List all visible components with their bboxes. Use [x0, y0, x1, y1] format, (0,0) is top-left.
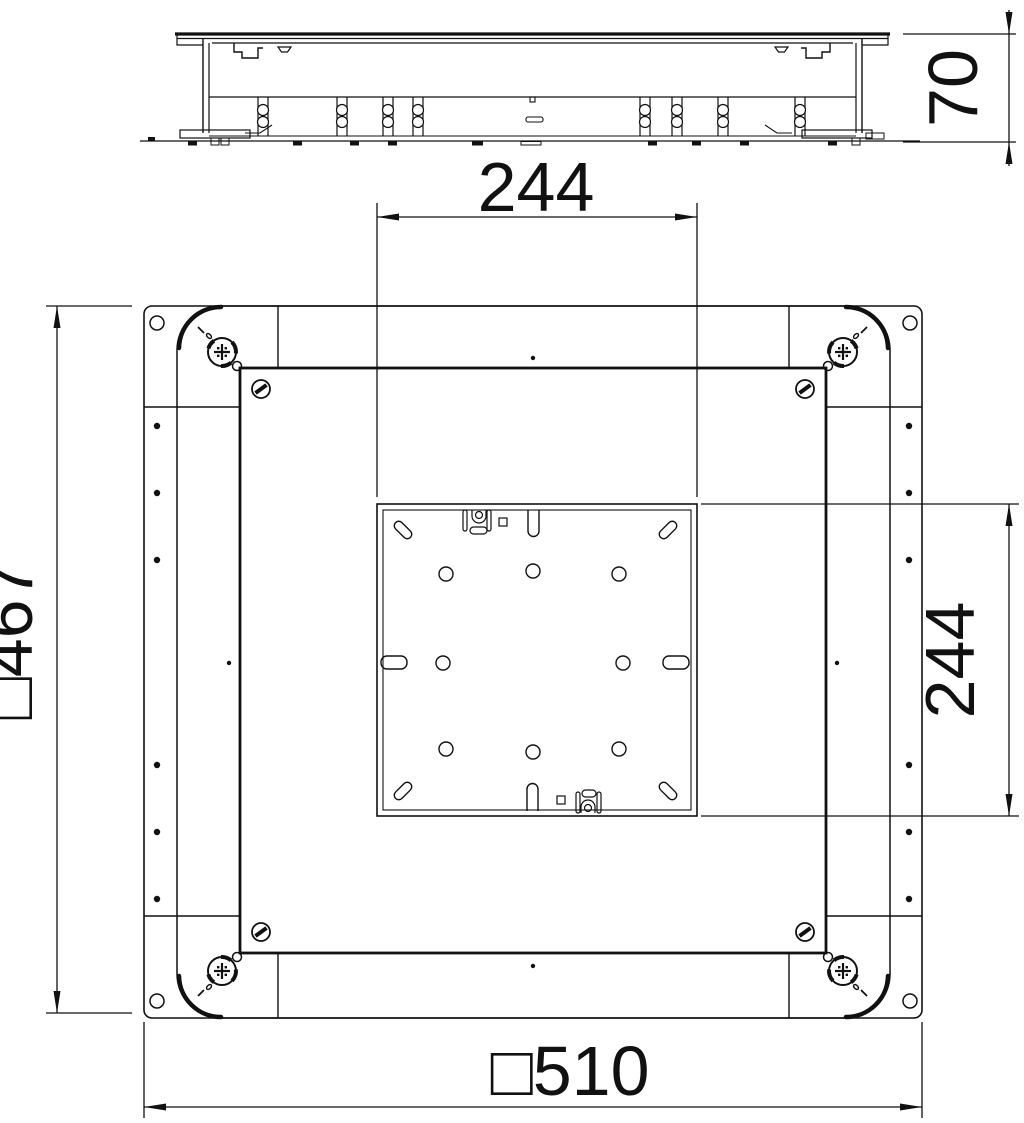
marker-right	[775, 47, 788, 52]
plan-view	[144, 306, 922, 1018]
side-view-body	[203, 39, 862, 136]
plate-top-details	[463, 510, 507, 534]
foot	[672, 97, 683, 136]
frame-corner-holes	[150, 316, 917, 1008]
dim-label-inner-height: 244	[911, 602, 989, 719]
plate-slot-top	[528, 510, 539, 537]
side-view	[140, 34, 920, 146]
slotted-screw	[252, 923, 270, 941]
lid-clamp-right	[801, 43, 830, 58]
dimension-inner-height: 244	[701, 504, 1019, 816]
leveling-screw	[824, 953, 868, 997]
slotted-screw	[796, 923, 814, 941]
foot	[258, 97, 269, 136]
center-notch	[530, 97, 535, 102]
outer-frame	[144, 306, 922, 1018]
dimension-frame-size: □467	[0, 306, 132, 1013]
dim-label-inner-width: 244	[478, 148, 595, 226]
cover-plate-screws	[252, 380, 814, 941]
center-marks	[227, 356, 839, 968]
dim-label-frame-size: □467	[0, 560, 47, 719]
leveling-screw	[824, 327, 868, 371]
cover-plate	[240, 368, 826, 953]
side-view-lid	[175, 34, 890, 45]
leveling-screws	[198, 327, 867, 996]
support-block-left	[180, 130, 250, 138]
foot	[718, 97, 729, 136]
frame-opening	[177, 306, 890, 1018]
corner-arcs	[179, 307, 888, 1017]
plate-slot-right	[663, 656, 689, 669]
dimension-overall-size: □510	[144, 1022, 922, 1118]
side-view-base	[140, 125, 920, 146]
leveling-screw	[198, 953, 242, 997]
dim-label-overall-size: □510	[490, 1032, 649, 1110]
lid-clamp-left	[234, 43, 263, 58]
edge-dots	[154, 423, 912, 902]
dimension-inner-width: 244	[377, 148, 697, 497]
plate-slot-left	[381, 656, 407, 669]
foot	[383, 97, 394, 136]
plate-slot-bottom	[527, 784, 538, 812]
slotted-screw	[796, 380, 814, 398]
foot	[640, 97, 651, 136]
mounting-plate	[377, 504, 697, 816]
dimension-side-height: 70	[903, 10, 1016, 166]
technical-drawing: 244 244 □467 □510	[0, 0, 1024, 1123]
foot	[337, 97, 348, 136]
foot	[413, 97, 424, 136]
slotted-screw	[252, 380, 270, 398]
plate-holes	[436, 564, 630, 759]
leveling-screw	[198, 327, 242, 371]
center-bar	[526, 117, 543, 122]
dim-label-side-height: 70	[914, 49, 992, 127]
marker-left	[278, 47, 291, 52]
frame-divisions	[144, 306, 922, 1018]
